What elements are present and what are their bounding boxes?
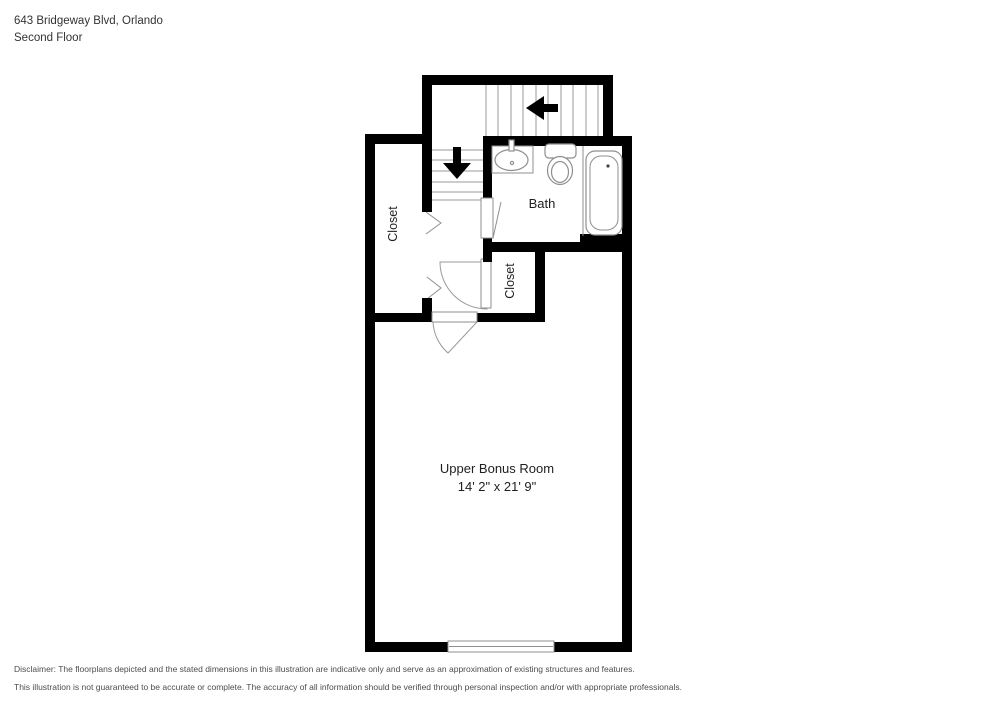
room-label-bath: Bath <box>529 196 556 211</box>
disclaimer: Disclaimer: The floorplans depicted and … <box>14 661 682 696</box>
toilet-icon <box>545 144 576 185</box>
bath-door <box>481 198 501 238</box>
bath-door-leaf <box>481 198 493 238</box>
room-label-closet-small: Closet <box>503 263 517 299</box>
stair-arrow-left-icon <box>526 96 558 120</box>
room-dimensions-bonus: 14' 2" x 21' 9" <box>458 479 537 494</box>
stair-arrow-down-icon <box>443 147 471 179</box>
bonus-room-door-swing-arc <box>433 322 477 353</box>
bath-fixtures <box>492 140 622 236</box>
bonus-room-door-leaf <box>432 312 477 322</box>
bathtub-icon <box>583 146 622 236</box>
closet-left-door-chevrons <box>426 212 441 299</box>
room-label-closet-left: Closet <box>386 206 400 242</box>
closet-small-door-leaf <box>481 259 491 308</box>
room-label-bonus: Upper Bonus Room <box>440 461 554 476</box>
floor-plan: Bath Closet Closet Upper Bonus Room 14' … <box>0 0 1000 707</box>
closet-small-door-swing-arc <box>440 262 487 309</box>
disclaimer-line-1: Disclaimer: The floorplans depicted and … <box>14 661 682 679</box>
disclaimer-line-2: This illustration is not guaranteed to b… <box>14 679 682 697</box>
window-symbol <box>448 641 554 652</box>
